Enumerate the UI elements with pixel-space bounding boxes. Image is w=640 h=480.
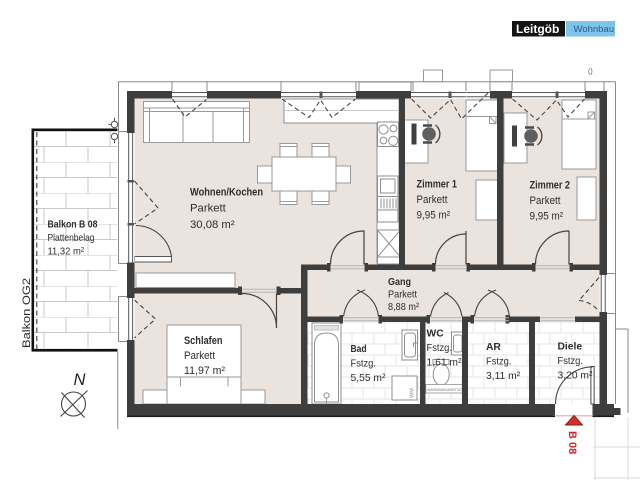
svg-text:9,95 m²: 9,95 m² xyxy=(417,210,451,222)
svg-text:Gang: Gang xyxy=(388,277,411,288)
svg-text:5,55 m²: 5,55 m² xyxy=(351,373,386,384)
svg-text:Zimmer 1: Zimmer 1 xyxy=(417,179,458,191)
svg-text:Schlafen: Schlafen xyxy=(184,335,223,347)
svg-text:9,95 m²: 9,95 m² xyxy=(530,211,564,223)
svg-text:3,20 m²: 3,20 m² xyxy=(558,371,593,382)
svg-text:3,11 m²: 3,11 m² xyxy=(486,371,521,382)
svg-text:Zimmer 2: Zimmer 2 xyxy=(530,180,571,192)
svg-text:Parkett: Parkett xyxy=(184,350,215,362)
svg-text:Fstzg.: Fstzg. xyxy=(486,357,512,368)
svg-text:Wohnbau: Wohnbau xyxy=(574,24,615,35)
svg-text:Wohnen/Kochen: Wohnen/Kochen xyxy=(190,186,263,198)
svg-text:Balkon OG2: Balkon OG2 xyxy=(21,278,33,348)
svg-text:Bad: Bad xyxy=(351,344,367,355)
svg-text:1,61 m²: 1,61 m² xyxy=(427,358,462,369)
svg-text:11,97 m²: 11,97 m² xyxy=(184,365,225,377)
svg-text:30,08 m²: 30,08 m² xyxy=(190,219,235,231)
svg-text:Parkett: Parkett xyxy=(388,289,417,300)
svg-text:Fstzg.: Fstzg. xyxy=(427,343,453,354)
svg-text:Parkett: Parkett xyxy=(417,194,448,206)
svg-text:Plattenbelag: Plattenbelag xyxy=(48,233,95,244)
svg-text:AR: AR xyxy=(486,342,501,353)
svg-text:WC: WC xyxy=(427,329,445,340)
svg-text:N: N xyxy=(74,371,86,389)
svg-text:(): () xyxy=(588,69,593,76)
svg-text:B 08: B 08 xyxy=(566,431,578,454)
svg-text:Balkon B 08: Balkon B 08 xyxy=(48,220,98,231)
svg-text:Parkett: Parkett xyxy=(190,203,227,215)
svg-text:Fstzg.: Fstzg. xyxy=(558,356,584,367)
svg-text:Diele: Diele xyxy=(558,342,583,353)
svg-text:Parkett: Parkett xyxy=(530,195,561,207)
svg-text:8,88 m²: 8,88 m² xyxy=(388,302,419,313)
svg-text:WM: WM xyxy=(410,388,416,398)
svg-text:Leitgöb: Leitgöb xyxy=(516,22,559,36)
svg-text:11,32 m²: 11,32 m² xyxy=(48,246,85,257)
svg-text:Fstzg.: Fstzg. xyxy=(351,359,377,370)
